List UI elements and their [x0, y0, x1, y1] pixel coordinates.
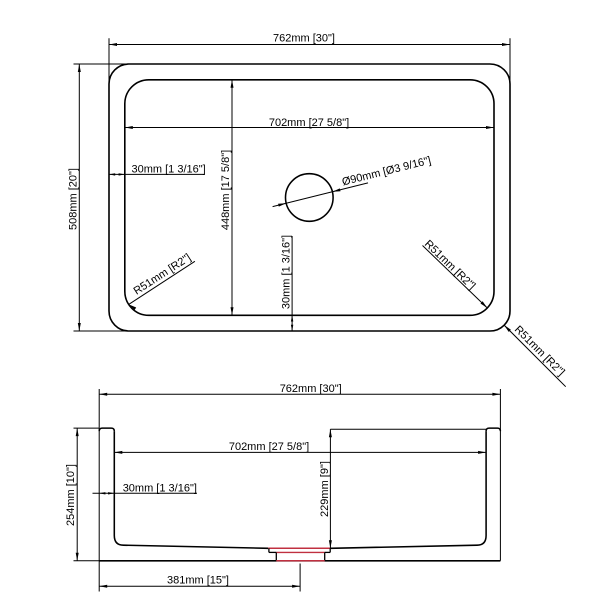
svg-text:30mm [1 3/16"]: 30mm [1 3/16"] [132, 164, 206, 176]
svg-text:30mm [1 3/16"]: 30mm [1 3/16"] [123, 482, 197, 494]
svg-text:R51mm [R2"]: R51mm [R2"] [512, 324, 567, 379]
svg-text:30mm [1 3/16"]: 30mm [1 3/16"] [281, 235, 293, 309]
svg-text:381mm [15"]: 381mm [15"] [167, 575, 229, 587]
svg-text:R51mm [R2"]: R51mm [R2"] [422, 238, 478, 292]
svg-text:762mm [30"]: 762mm [30"] [280, 383, 342, 395]
svg-text:508mm [20"]: 508mm [20"] [68, 168, 80, 230]
svg-text:254mm [10"]: 254mm [10"] [65, 464, 77, 526]
svg-text:702mm [27 5/8"]: 702mm [27 5/8"] [229, 441, 309, 453]
svg-text:762mm [30"]: 762mm [30"] [273, 33, 335, 45]
svg-text:R51mm [R2"]: R51mm [R2"] [132, 252, 194, 298]
svg-text:229mm [9"]: 229mm [9"] [319, 461, 331, 517]
svg-text:702mm [27 5/8"]: 702mm [27 5/8"] [269, 117, 349, 129]
svg-text:Ø90mm [Ø3 9/16"]: Ø90mm [Ø3 9/16"] [341, 155, 433, 189]
svg-text:448mm [17 5/8"]: 448mm [17 5/8"] [220, 150, 232, 230]
